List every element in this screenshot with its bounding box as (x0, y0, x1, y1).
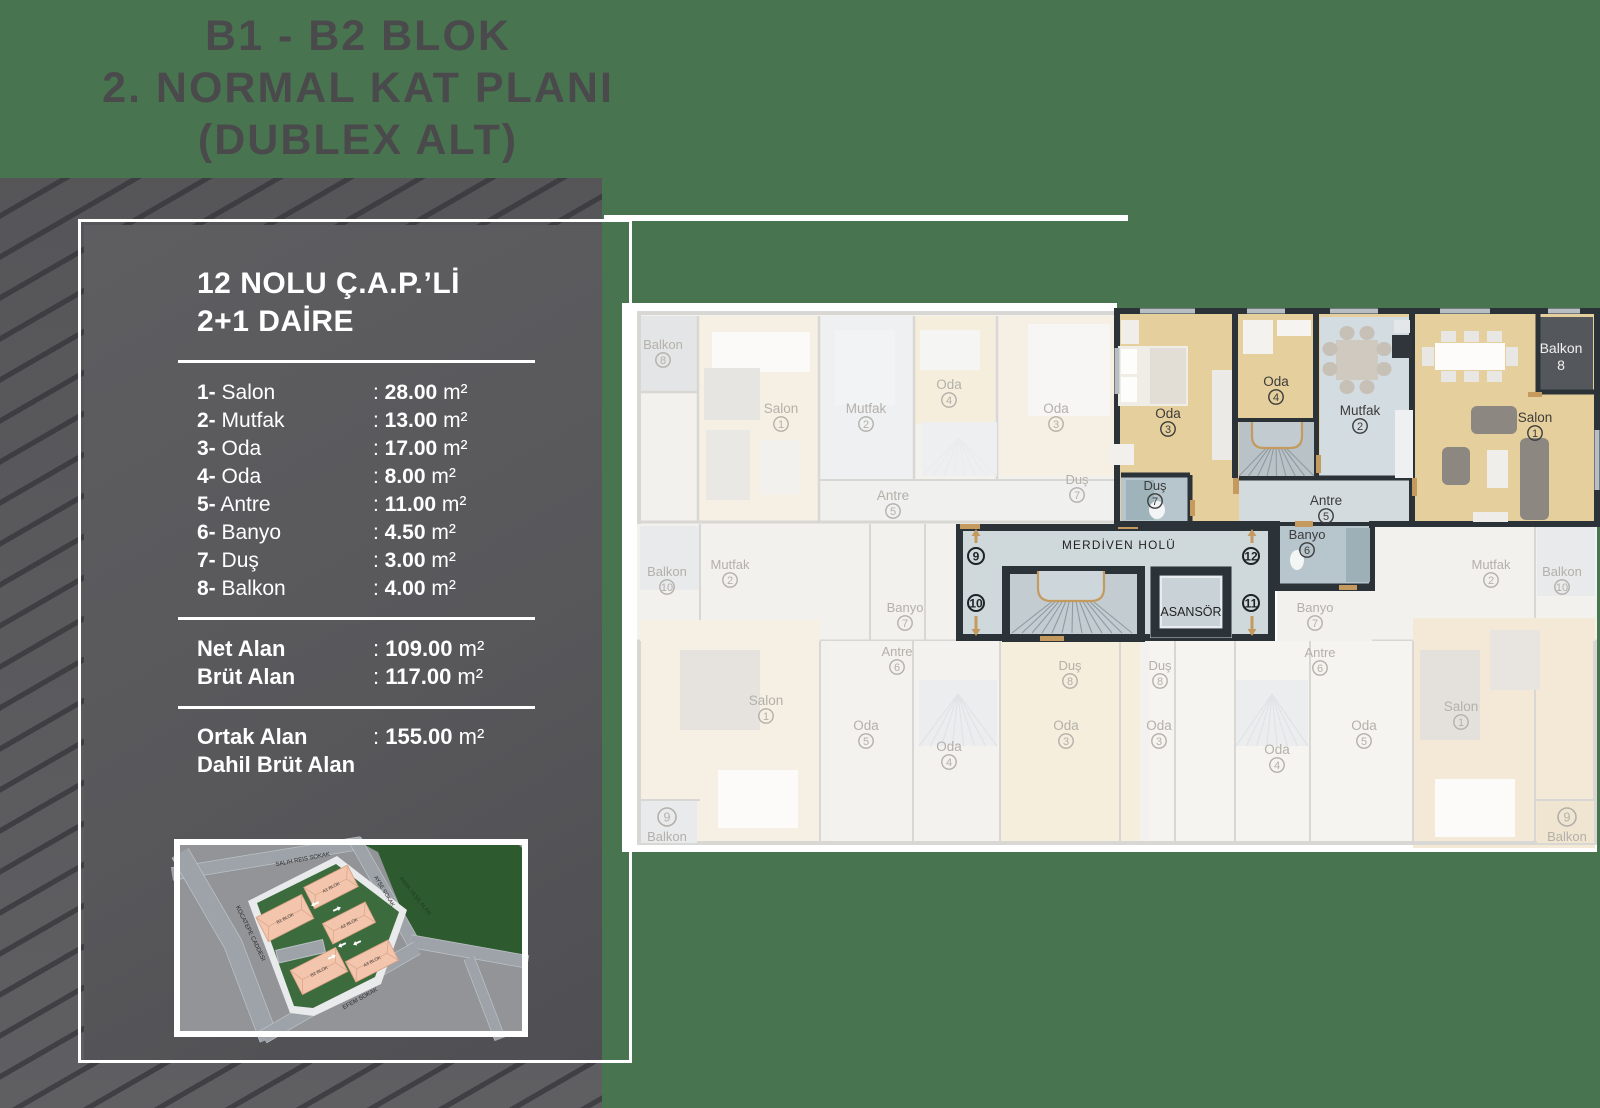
svg-text:Antre: Antre (881, 644, 912, 659)
svg-text:Mutfak: Mutfak (846, 401, 887, 416)
svg-text:Duş: Duş (1058, 658, 1082, 673)
svg-text:Oda: Oda (1263, 374, 1289, 389)
svg-text:Oda: Oda (1155, 406, 1181, 421)
svg-text:Duş: Duş (1148, 658, 1172, 673)
svg-text:9: 9 (973, 550, 980, 564)
svg-text:Mutfak: Mutfak (710, 557, 750, 572)
svg-text:Balkon: Balkon (1547, 829, 1587, 844)
svg-text:Salon: Salon (1444, 699, 1479, 714)
svg-text:Oda: Oda (1264, 742, 1290, 757)
svg-text:8: 8 (1067, 676, 1073, 688)
svg-text:Mutfak: Mutfak (1471, 557, 1511, 572)
svg-text:12: 12 (1244, 550, 1258, 564)
svg-text:3: 3 (1165, 424, 1171, 436)
svg-text:Oda: Oda (936, 739, 962, 754)
svg-text:Balkon: Balkon (1542, 564, 1582, 579)
svg-text:3: 3 (1063, 736, 1069, 748)
svg-text:Duş: Duş (1065, 472, 1089, 487)
svg-text:2: 2 (1488, 575, 1494, 587)
svg-text:Balkon: Balkon (647, 829, 687, 844)
svg-text:3: 3 (1156, 736, 1162, 748)
svg-text:Salon: Salon (749, 693, 784, 708)
svg-text:4: 4 (946, 757, 952, 769)
svg-text:3: 3 (1053, 419, 1059, 431)
svg-text:MERDİVEN HOLÜ: MERDİVEN HOLÜ (1062, 538, 1176, 552)
svg-text:10: 10 (661, 582, 673, 594)
svg-text:Banyo: Banyo (887, 600, 924, 615)
svg-text:8: 8 (1557, 357, 1565, 373)
svg-text:5: 5 (1361, 736, 1367, 748)
svg-text:7: 7 (1312, 618, 1318, 630)
svg-text:Oda: Oda (936, 377, 962, 392)
svg-text:Duş: Duş (1143, 478, 1167, 493)
svg-text:5: 5 (1323, 511, 1329, 523)
svg-text:1: 1 (1532, 428, 1538, 440)
svg-text:1: 1 (1458, 717, 1464, 729)
svg-text:9: 9 (664, 811, 671, 825)
svg-text:Balkon: Balkon (1540, 340, 1583, 356)
svg-text:Oda: Oda (853, 718, 879, 733)
svg-text:9: 9 (1564, 811, 1571, 825)
svg-text:Antre: Antre (877, 488, 909, 503)
svg-text:8: 8 (660, 355, 666, 367)
svg-text:5: 5 (890, 506, 896, 518)
svg-text:1: 1 (763, 711, 769, 723)
svg-text:Oda: Oda (1146, 718, 1172, 733)
svg-text:Oda: Oda (1351, 718, 1377, 733)
svg-text:Banyo: Banyo (1289, 527, 1326, 542)
svg-text:2: 2 (727, 575, 733, 587)
svg-text:4: 4 (946, 395, 952, 407)
svg-text:7: 7 (1074, 490, 1080, 502)
svg-text:6: 6 (1317, 663, 1323, 675)
svg-text:Banyo: Banyo (1297, 600, 1334, 615)
svg-text:Oda: Oda (1043, 401, 1069, 416)
svg-text:4: 4 (1274, 760, 1280, 772)
svg-text:Salon: Salon (1518, 410, 1553, 425)
svg-text:1: 1 (778, 419, 784, 431)
svg-text:Balkon: Balkon (643, 337, 683, 352)
svg-text:ASANSÖR: ASANSÖR (1160, 605, 1221, 619)
svg-text:5: 5 (863, 736, 869, 748)
svg-text:2: 2 (863, 419, 869, 431)
svg-text:7: 7 (1152, 496, 1158, 508)
svg-text:11: 11 (1245, 597, 1258, 611)
svg-text:Antre: Antre (1310, 493, 1342, 508)
svg-text:6: 6 (894, 662, 900, 674)
svg-text:7: 7 (902, 618, 908, 630)
svg-text:Mutfak: Mutfak (1340, 403, 1381, 418)
svg-text:Oda: Oda (1053, 718, 1079, 733)
svg-text:Balkon: Balkon (647, 564, 687, 579)
svg-text:Antre: Antre (1304, 645, 1335, 660)
svg-text:Salon: Salon (764, 401, 799, 416)
svg-text:10: 10 (969, 597, 983, 611)
svg-text:6: 6 (1304, 545, 1310, 557)
svg-text:8: 8 (1157, 676, 1163, 688)
svg-text:2: 2 (1357, 421, 1363, 433)
svg-text:4: 4 (1273, 392, 1279, 404)
svg-text:10: 10 (1556, 582, 1568, 594)
